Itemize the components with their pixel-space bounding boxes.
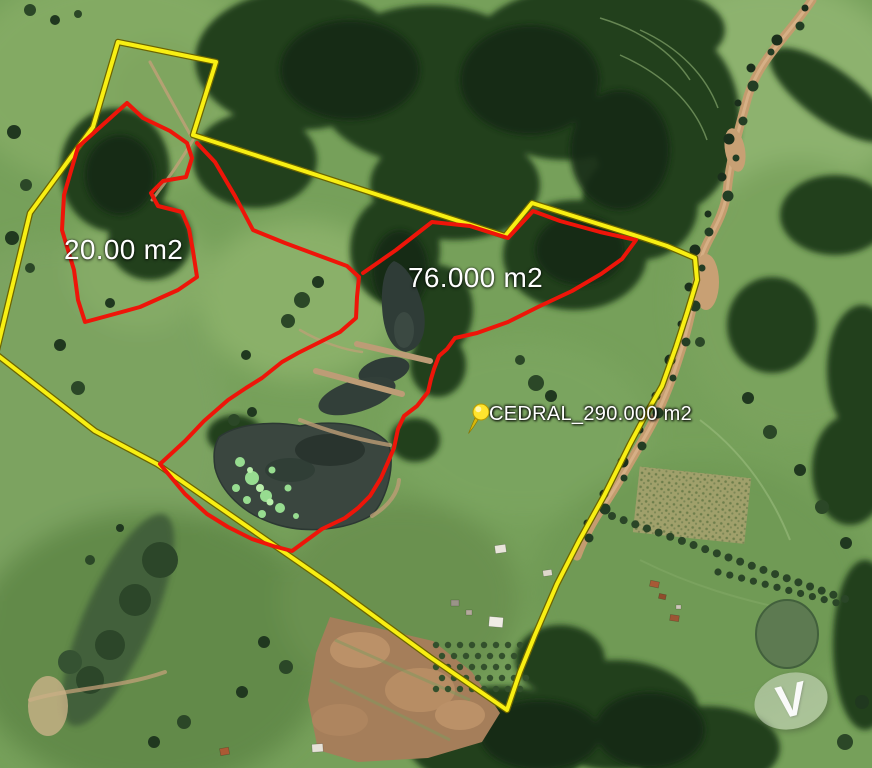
satellite-terrain: [0, 0, 872, 768]
small-pond: [756, 600, 818, 668]
crop-field: [633, 467, 751, 544]
dirt-patch: [28, 676, 68, 736]
parcel-label-property: CEDRAL_290.000 m2: [489, 404, 692, 424]
parcel-label-small: 20.00 m2: [64, 236, 183, 264]
pushpin-icon: [466, 403, 494, 437]
satellite-map: 20.00 m2 76.000 m2 CEDRAL_290.000 m2 V: [0, 0, 872, 768]
parcel-label-medium: 76.000 m2: [408, 264, 543, 292]
watermark-letter: V: [773, 673, 809, 726]
